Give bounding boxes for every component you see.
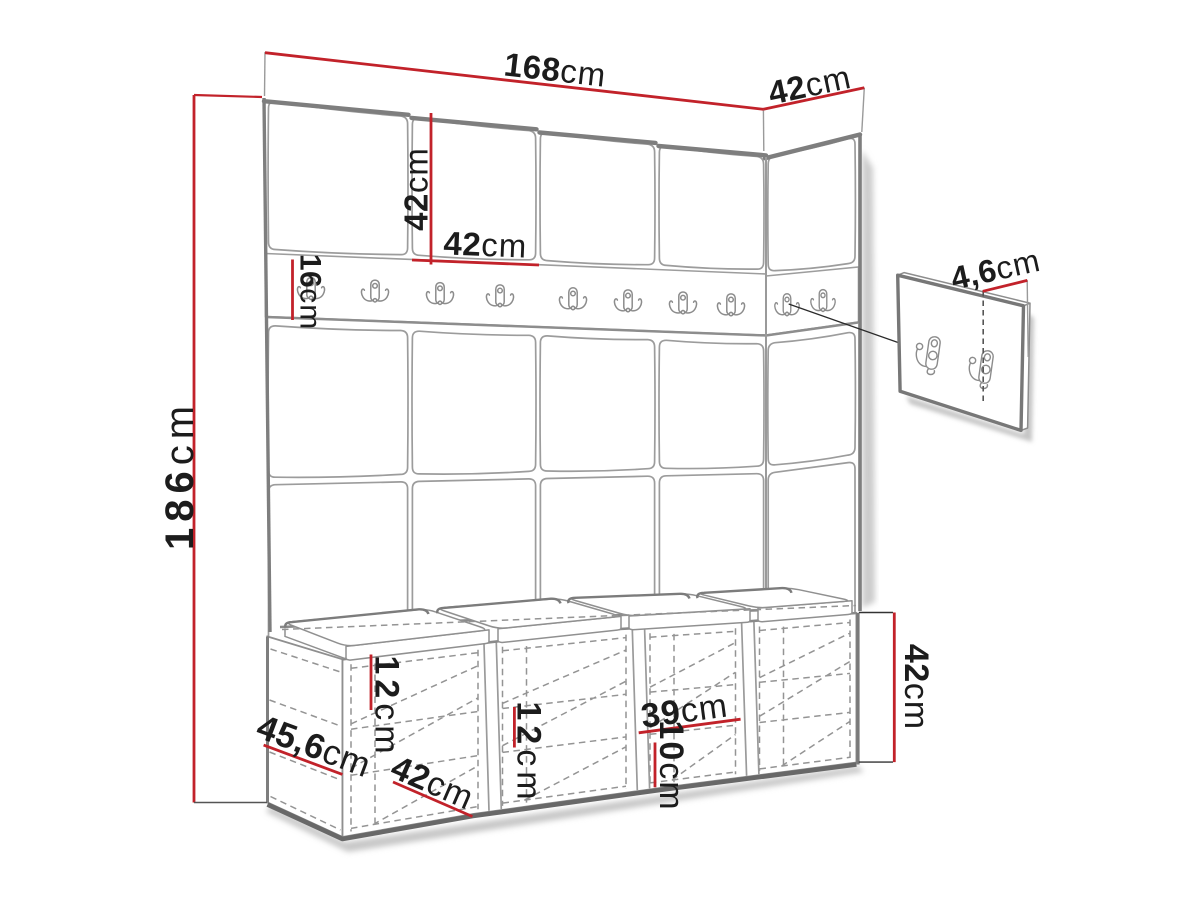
svg-text:42cm: 42cm: [897, 644, 935, 730]
svg-text:12cm: 12cm: [368, 655, 406, 758]
svg-text:186cm: 186cm: [158, 400, 202, 550]
svg-text:42cm: 42cm: [398, 147, 435, 231]
svg-text:16cm: 16cm: [294, 254, 327, 330]
svg-text:42cm: 42cm: [443, 224, 528, 264]
svg-text:12cm: 12cm: [510, 701, 548, 804]
svg-text:168cm: 168cm: [502, 45, 608, 93]
svg-text:10cm: 10cm: [652, 720, 690, 811]
svg-text:42cm: 42cm: [765, 58, 855, 112]
